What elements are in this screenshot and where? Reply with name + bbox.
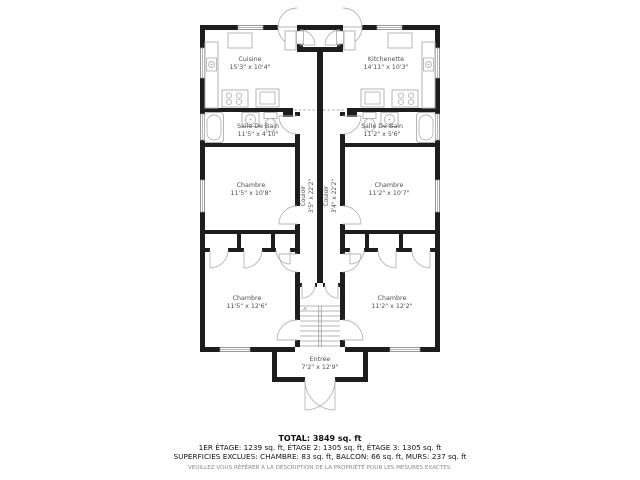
counter [285, 31, 296, 50]
window [238, 26, 263, 30]
room-dims-chambre-bottom-left: 11'5" x 12'6" [226, 303, 267, 310]
summary-exclusions: SUPERFICIES EXCLUES: CHAMBRE: 83 sq. ft,… [174, 452, 467, 461]
room-dims-kitchenette: 14'11" x 10'3" [363, 64, 408, 71]
room-label-chambre-mid-right: Chambre [375, 182, 404, 189]
room-dims-chambre-mid-right: 11'2" x 10'7" [368, 190, 409, 197]
summary-total: TOTAL: 3849 sq. ft [278, 434, 361, 443]
stair-arrow [304, 308, 307, 311]
summary-floors: 1ER ÉTAGE: 1239 sq. ft, ÉTAGE 2: 1305 sq… [199, 443, 442, 452]
room-label-cuisine: Cuisine [238, 56, 261, 63]
room-label-entree: Entrée [310, 355, 331, 363]
room-dims-salle-de-bain-right: 11'2" x 5'6" [363, 131, 400, 138]
window [201, 180, 205, 212]
window [390, 348, 420, 352]
room-dims-salle-de-bain-left: 11'5" x 4'10" [237, 131, 278, 138]
window [436, 180, 440, 212]
floor-plan: Cuisine 15'3" x 10'4" Kitchenette 14'11"… [0, 0, 640, 480]
room-label-salle-de-bain-right: Salle De Bain [361, 123, 403, 130]
fridge-icon [228, 33, 252, 48]
room-dims-couloir-left: 3'5" x 22'2" [309, 179, 315, 213]
room-dims-chambre-mid-left: 11'5" x 10'8" [230, 190, 271, 197]
summary-disclaimer: VEUILLEZ VOUS RÉFÉRER À LA DESCRIPTION D… [188, 463, 452, 471]
window [201, 114, 205, 140]
room-label-chambre-bottom-right: Chambre [378, 295, 407, 302]
bathtub-icon [417, 113, 436, 143]
room-label-couloir-left: Couloir [301, 185, 307, 206]
counter [205, 42, 218, 108]
room-label-chambre-bottom-left: Chambre [233, 295, 262, 302]
staircase [300, 306, 340, 347]
counter [344, 31, 355, 50]
window [436, 48, 440, 78]
window [436, 114, 440, 140]
bathtub-icon [205, 113, 224, 143]
window [201, 48, 205, 78]
stove-icon [392, 90, 418, 107]
room-label-kitchenette: Kitchenette [368, 56, 404, 63]
window [377, 26, 402, 30]
room-label-salle-de-bain-left: Salle De Bain [237, 123, 279, 130]
room-dims-cuisine: 15'3" x 10'4" [229, 64, 270, 71]
window [220, 348, 250, 352]
room-label-couloir-right: Couloir [324, 185, 330, 206]
summary-block: TOTAL: 3849 sq. ft 1ER ÉTAGE: 1239 sq. f… [174, 434, 467, 471]
room-dims-entree: 7'2" x 12'9" [301, 364, 338, 371]
room-dims-chambre-bottom-right: 11'2" x 12'2" [371, 303, 412, 310]
floor-plan-page: Cuisine 15'3" x 10'4" Kitchenette 14'11"… [0, 0, 640, 480]
counter [422, 42, 435, 108]
room-dims-couloir-right: 3'4" x 22'2" [332, 179, 338, 213]
party-wall [317, 47, 323, 283]
stove-icon [222, 90, 248, 107]
fridge-icon [388, 33, 412, 48]
room-label-chambre-mid-left: Chambre [237, 182, 266, 189]
